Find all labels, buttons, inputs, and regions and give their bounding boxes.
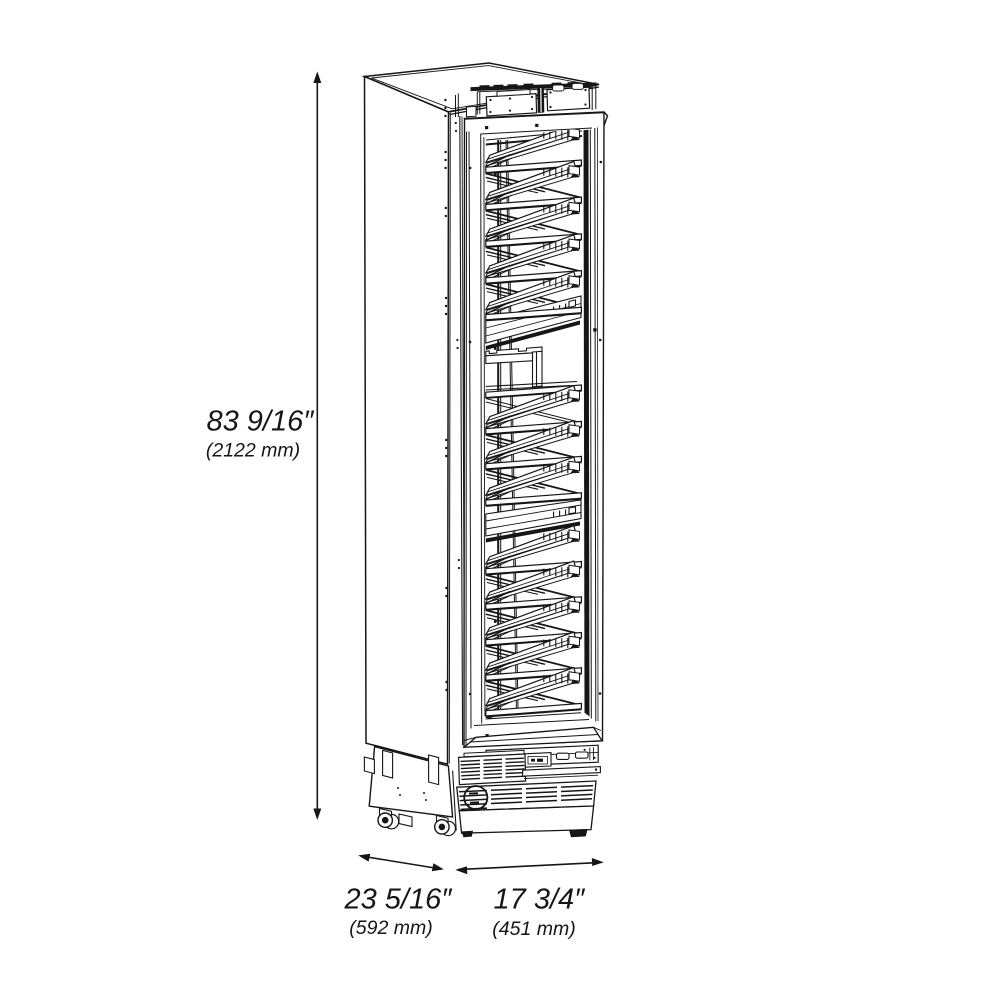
- svg-text:23 5/16″: 23 5/16″: [343, 884, 453, 916]
- svg-text:83 9/16″: 83 9/16″: [206, 406, 315, 438]
- svg-text:(592 mm): (592 mm): [349, 917, 432, 939]
- svg-text:(2122 mm): (2122 mm): [206, 440, 300, 462]
- svg-text:(451 mm): (451 mm): [492, 918, 575, 940]
- svg-text:17 3/4″: 17 3/4″: [494, 884, 587, 916]
